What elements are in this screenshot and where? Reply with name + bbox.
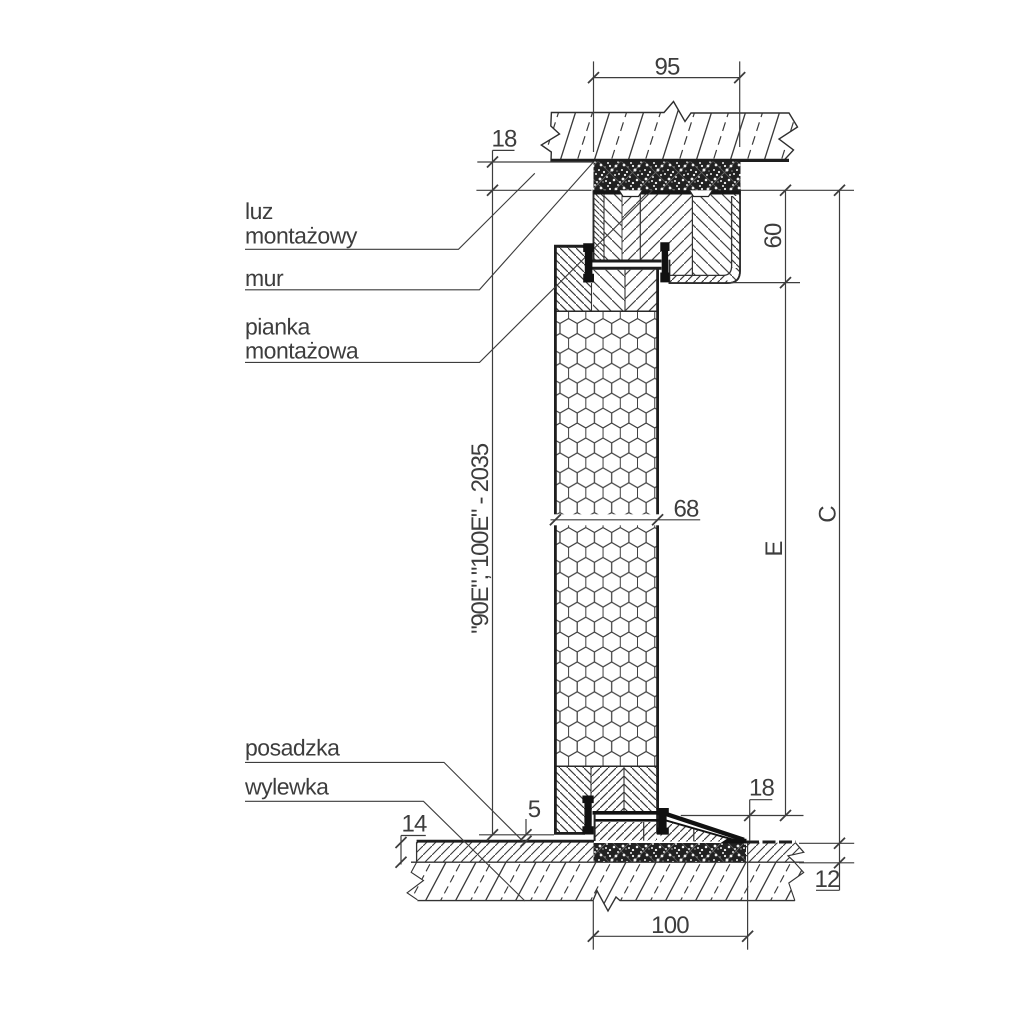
svg-text:100: 100 xyxy=(651,912,689,939)
svg-text:pianka: pianka xyxy=(245,314,310,340)
svg-text:14: 14 xyxy=(401,811,427,838)
svg-text:luz: luz xyxy=(245,198,273,224)
svg-text:60: 60 xyxy=(760,223,787,249)
svg-text:mur: mur xyxy=(245,265,284,291)
svg-text:68: 68 xyxy=(673,496,699,523)
svg-text:"90E","100E" - 2035: "90E","100E" - 2035 xyxy=(467,443,494,633)
svg-text:C: C xyxy=(815,506,842,523)
svg-text:E: E xyxy=(761,541,788,556)
svg-text:18: 18 xyxy=(749,775,775,802)
svg-text:18: 18 xyxy=(491,126,517,153)
svg-text:95: 95 xyxy=(654,54,680,81)
svg-text:posadzka: posadzka xyxy=(245,735,340,761)
svg-text:5: 5 xyxy=(528,796,541,823)
svg-text:wylewka: wylewka xyxy=(244,774,329,800)
svg-text:montażowy: montażowy xyxy=(245,223,358,249)
svg-text:montażowa: montażowa xyxy=(245,338,359,364)
svg-text:12: 12 xyxy=(814,866,840,893)
